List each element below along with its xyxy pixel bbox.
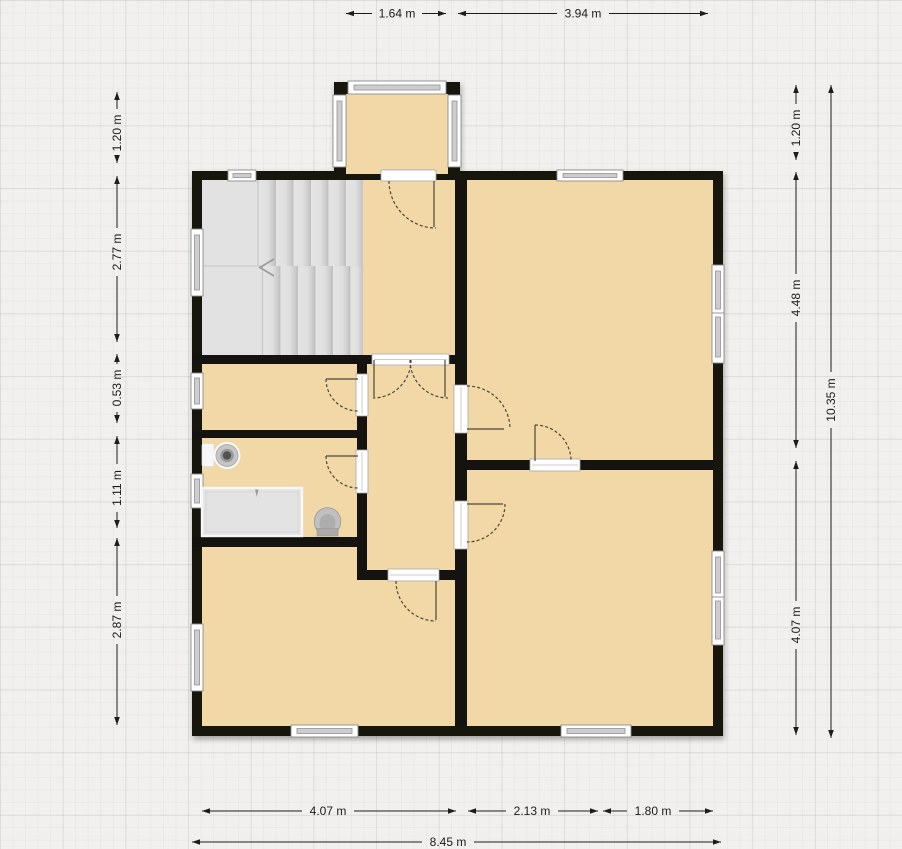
svg-text:1.64 m: 1.64 m — [379, 7, 416, 21]
svg-text:2.87 m: 2.87 m — [110, 602, 124, 639]
svg-text:8.45 m: 8.45 m — [430, 835, 467, 849]
svg-text:4.07 m: 4.07 m — [789, 607, 803, 644]
svg-text:1.20 m: 1.20 m — [789, 110, 803, 147]
svg-text:4.48 m: 4.48 m — [789, 280, 803, 317]
svg-text:0.53 m: 0.53 m — [110, 370, 124, 407]
svg-text:4.07 m: 4.07 m — [310, 804, 347, 818]
svg-text:1.20 m: 1.20 m — [110, 115, 124, 152]
svg-text:2.77 m: 2.77 m — [110, 234, 124, 271]
svg-text:2.13 m: 2.13 m — [514, 804, 551, 818]
svg-text:1.11 m: 1.11 m — [110, 470, 124, 506]
svg-text:10.35 m: 10.35 m — [824, 378, 838, 421]
svg-text:1.80 m: 1.80 m — [635, 804, 672, 818]
svg-text:3.94 m: 3.94 m — [565, 7, 602, 21]
